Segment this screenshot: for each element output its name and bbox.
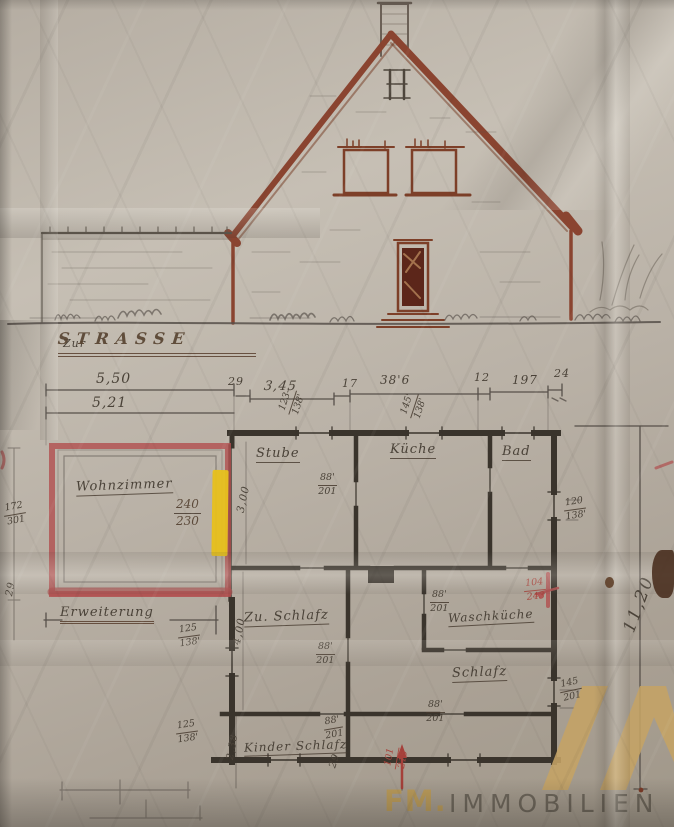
dim-197: 197 (512, 374, 538, 386)
grass-scribbles (55, 310, 640, 323)
dim-red-bottom: 101 215 (383, 745, 411, 771)
dim-waschkueche-red: 104 243 (523, 577, 548, 604)
blueprint-photo: Zur STRASSE 5,50 5,21 29 3,45 123- 138' … (0, 0, 674, 827)
chimney-plan-block (368, 566, 394, 583)
watermark-fm: FM. (384, 784, 447, 818)
room-label-kueche: Küche (390, 443, 436, 459)
room-label-stube: Stube (256, 447, 300, 463)
dim-stube-door: 88' 201 (318, 473, 337, 498)
dim-wohnzimmer: 240 230 (174, 498, 201, 529)
roof-right-edge (391, 34, 573, 228)
side-extension-outline (42, 227, 231, 322)
room-label-bad: Bad (502, 445, 531, 461)
dim-29: 29 (228, 376, 244, 387)
street-label-text: STRASSE (57, 329, 192, 348)
dim-bottom: 201 (318, 486, 337, 498)
room-label-schlafz: Schlafz (452, 665, 508, 683)
yellow-highlight-marker (211, 470, 228, 556)
dim-386: 38'6 (380, 374, 410, 386)
dim-12: 12 (474, 372, 490, 383)
plant-scribbles (590, 242, 662, 312)
dim-top: 88' (430, 590, 449, 603)
dim-top: 88' (316, 642, 335, 655)
ground-line (8, 322, 660, 324)
dim-top: 88' (318, 473, 337, 486)
watermark-immobilien: IMMOBILIEN (449, 789, 660, 818)
dim-bottom-left: 125 138' (174, 719, 199, 747)
dim-bottom: 243 (524, 590, 547, 604)
street-label: STRASSE (58, 329, 256, 357)
floor-plan-drawing (0, 0, 674, 827)
left-window-icon (334, 139, 396, 195)
dim-550: 5,50 (96, 372, 131, 386)
dim-left-outer: 172 301 (2, 500, 28, 528)
dim-right-upper: 120 138' (562, 496, 587, 524)
dim-bottom-mid: 88' 201 (322, 715, 345, 743)
extension-red-outline (52, 446, 228, 594)
dim-17: 17 (342, 378, 358, 389)
dim-bottom: 201 (426, 713, 445, 725)
dim-top: 88' (426, 700, 445, 713)
dim-521: 5,21 (92, 396, 127, 410)
dim-bottom: 201 (316, 655, 335, 667)
erweiterung-label: Erweiterung (60, 606, 154, 624)
right-window-icon (406, 139, 470, 195)
floor-plan-walls (214, 427, 560, 766)
dim-zu-schlafz-door: 88' 201 (316, 642, 335, 667)
dim-top: 240 (174, 498, 201, 514)
dim-bottom: 201 (430, 603, 449, 615)
gable-window-icon (384, 70, 410, 99)
room-label-zu-schlafz: Zu. Schlafz (244, 609, 329, 628)
dim-bottom: 230 (174, 514, 201, 529)
dim-24: 24 (554, 368, 570, 379)
dim-waschkueche-door: 88' 201 (430, 590, 449, 615)
elevation-drawing (8, 3, 662, 327)
room-label-wohnzimmer: Wohnzimmer (76, 477, 173, 496)
dim-erweiterung: 125 138' (176, 623, 201, 651)
front-door-icon (377, 240, 449, 327)
roof-left-edge (231, 34, 391, 238)
dim-schlafz-door: 88' 201 (426, 700, 445, 725)
